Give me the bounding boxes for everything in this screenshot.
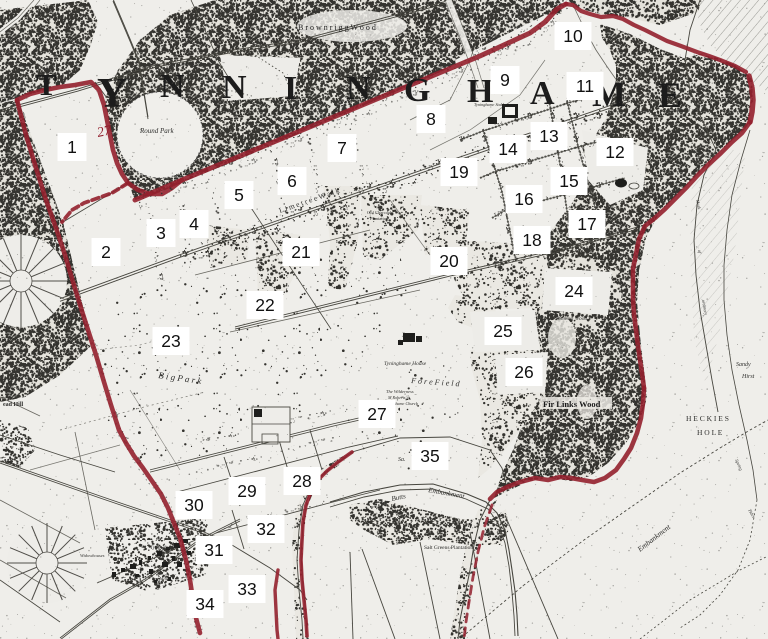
svg-text:16: 16	[514, 189, 533, 209]
svg-text:23: 23	[161, 331, 180, 351]
svg-text:10: 10	[563, 26, 583, 46]
svg-text:34: 34	[195, 594, 215, 614]
svg-text:30: 30	[184, 495, 204, 515]
svg-text:3: 3	[156, 223, 166, 243]
svg-text:5: 5	[234, 185, 244, 205]
svg-text:12: 12	[605, 142, 624, 162]
svg-text:32: 32	[256, 519, 275, 539]
svg-text:2: 2	[101, 242, 111, 262]
svg-text:19: 19	[449, 162, 468, 182]
svg-text:25: 25	[493, 321, 512, 341]
svg-text:13: 13	[539, 126, 558, 146]
svg-text:29: 29	[237, 481, 256, 501]
svg-text:24: 24	[564, 281, 584, 301]
svg-text:27: 27	[367, 404, 386, 424]
svg-text:28: 28	[292, 471, 311, 491]
svg-text:1: 1	[67, 137, 77, 157]
svg-text:4: 4	[189, 214, 199, 234]
svg-text:7: 7	[337, 138, 347, 158]
svg-text:8: 8	[426, 109, 436, 129]
svg-text:15: 15	[559, 171, 578, 191]
svg-text:9: 9	[500, 70, 510, 90]
svg-text:14: 14	[498, 139, 518, 159]
svg-text:6: 6	[287, 171, 297, 191]
svg-text:18: 18	[522, 230, 541, 250]
svg-text:21: 21	[291, 242, 310, 262]
svg-text:26: 26	[514, 362, 533, 382]
svg-text:11: 11	[576, 76, 594, 96]
svg-text:33: 33	[237, 579, 256, 599]
svg-text:22: 22	[255, 295, 274, 315]
svg-text:17: 17	[577, 214, 596, 234]
svg-text:20: 20	[439, 251, 459, 271]
svg-text:35: 35	[420, 446, 439, 466]
svg-text:31: 31	[204, 540, 223, 560]
